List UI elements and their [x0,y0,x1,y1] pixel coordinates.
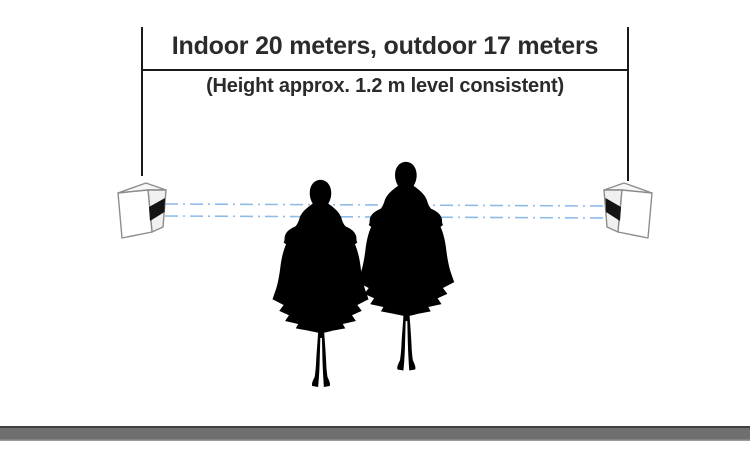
height-label: (Height approx. 1.2 m level consistent) [142,75,628,98]
left-sensor-front-face [118,190,152,238]
person-silhouette-right [357,162,454,371]
right-beam-sensor [604,183,652,238]
range-label: Indoor 20 meters, outdoor 17 meters [142,32,628,61]
person-silhouette-left [272,180,368,387]
left-beam-sensor [118,183,166,238]
floor-bottom-edge [0,440,750,442]
floor [0,426,750,441]
installation-diagram: Indoor 20 meters, outdoor 17 meters (Hei… [0,0,750,460]
right-sensor-front-face [618,190,652,238]
diagram-graphics [0,0,750,460]
floor-top-edge [0,426,750,428]
floor-bar [0,426,750,441]
